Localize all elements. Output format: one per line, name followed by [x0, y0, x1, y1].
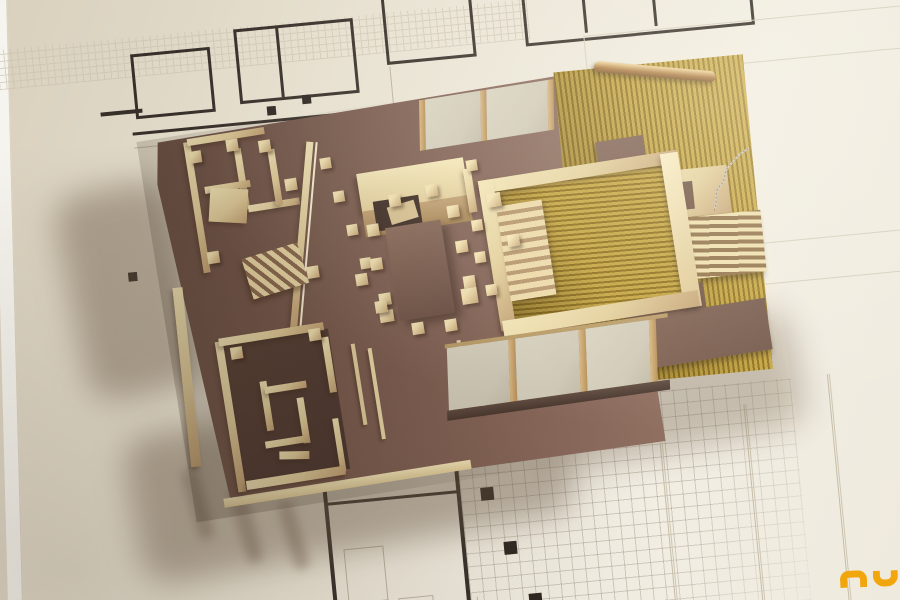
grey-panel	[425, 91, 481, 150]
column-block	[485, 284, 498, 297]
grey-panel	[585, 320, 651, 391]
column-block	[474, 251, 487, 264]
column-block	[284, 178, 298, 192]
column-block	[189, 150, 203, 164]
column-block	[425, 184, 439, 198]
column-block	[346, 224, 359, 237]
column-block	[486, 192, 502, 208]
column-block	[308, 328, 322, 342]
column-block	[465, 159, 478, 172]
column-block	[446, 205, 460, 219]
column-block	[460, 287, 478, 305]
column-block	[471, 219, 484, 232]
column-block	[207, 251, 221, 265]
column-block	[319, 157, 332, 170]
plan-furniture	[398, 595, 437, 600]
column-block	[507, 233, 521, 247]
nu-logo	[840, 565, 900, 593]
plan-column	[529, 593, 543, 600]
plan-room	[380, 0, 477, 65]
plan-furniture	[343, 546, 388, 600]
logo-glyph-n	[840, 570, 868, 588]
column-block	[388, 194, 402, 208]
courtyard	[478, 150, 700, 337]
column-block	[366, 223, 380, 237]
column-block	[411, 321, 425, 335]
column-block	[455, 240, 469, 254]
column-block	[444, 318, 458, 332]
wire-spring	[697, 140, 777, 220]
column-block	[355, 273, 369, 287]
column-block	[230, 346, 244, 360]
panel-divider	[649, 319, 658, 382]
column-block	[306, 265, 320, 279]
plan-column	[267, 106, 277, 116]
grey-panel	[486, 80, 548, 140]
plan-column	[302, 94, 312, 104]
grey-panel	[447, 340, 511, 411]
plan-room	[130, 47, 216, 119]
column-block	[374, 300, 388, 314]
column-block	[258, 139, 272, 153]
column-block	[370, 257, 384, 271]
column-block	[225, 138, 239, 152]
partition	[279, 451, 309, 460]
panel-divider	[547, 79, 554, 130]
column-block	[333, 190, 346, 203]
roof-slab	[209, 188, 249, 224]
grey-panel	[515, 330, 581, 401]
plan-room	[233, 18, 360, 104]
plan-column	[503, 541, 517, 555]
logo-glyph-u	[873, 570, 899, 587]
photo-architectural-model	[0, 0, 900, 600]
